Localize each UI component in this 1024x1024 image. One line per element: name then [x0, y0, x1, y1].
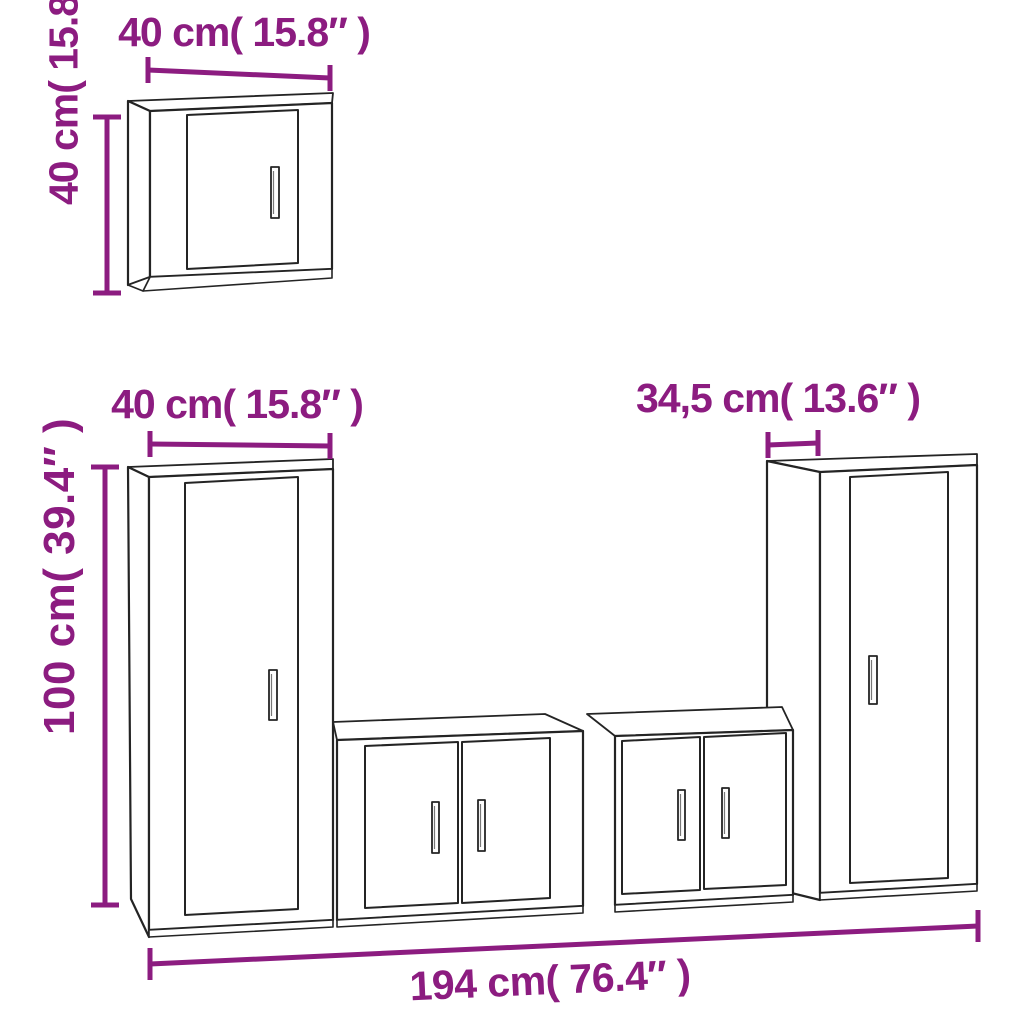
low-cabinet-left	[333, 714, 583, 927]
dimension-line-wall-cabinet-height	[93, 117, 121, 293]
tall-cabinet-right	[767, 454, 977, 900]
tall-cabinet-width-label: 40 cm( 15.8″ )	[104, 384, 370, 425]
cabinet-side-panel	[128, 101, 150, 285]
cabinet-door	[462, 738, 550, 903]
cabinet-line-drawing	[0, 0, 1024, 1024]
wall-cabinet-width-label: 40 cm( 15.8″ )	[112, 12, 376, 53]
cabinet-door	[185, 477, 298, 915]
dimension-line-tall-cabinet-width	[150, 431, 330, 459]
furniture-dimension-diagram: 40 cm( 15.8″ ) 40 cm( 15.8″ ) 40 cm( 15.…	[0, 0, 1024, 1024]
cabinet-door	[365, 742, 458, 908]
cabinet-door	[850, 472, 948, 883]
door-handle	[722, 788, 729, 838]
cabinet-door	[187, 110, 298, 269]
door-handle	[678, 790, 685, 840]
dimension-line-wall-cabinet-width	[148, 57, 330, 91]
cabinet-door	[622, 737, 700, 894]
dimension-line-tall-cabinet-height	[91, 467, 119, 905]
dimension-line-right-cabinet-depth	[768, 430, 818, 458]
wall-cabinet	[128, 93, 333, 291]
door-handle	[271, 167, 279, 218]
cabinet-door	[704, 733, 786, 889]
tall-cabinet-left	[128, 459, 333, 937]
door-handle	[432, 802, 439, 853]
door-handle	[869, 656, 877, 704]
right-cabinet-depth-label: 34,5 cm( 13.6″ )	[628, 378, 928, 419]
cabinet-side-panel	[128, 467, 149, 937]
door-handle	[269, 670, 277, 720]
low-cabinet-right	[587, 707, 793, 912]
door-handle	[478, 800, 485, 851]
